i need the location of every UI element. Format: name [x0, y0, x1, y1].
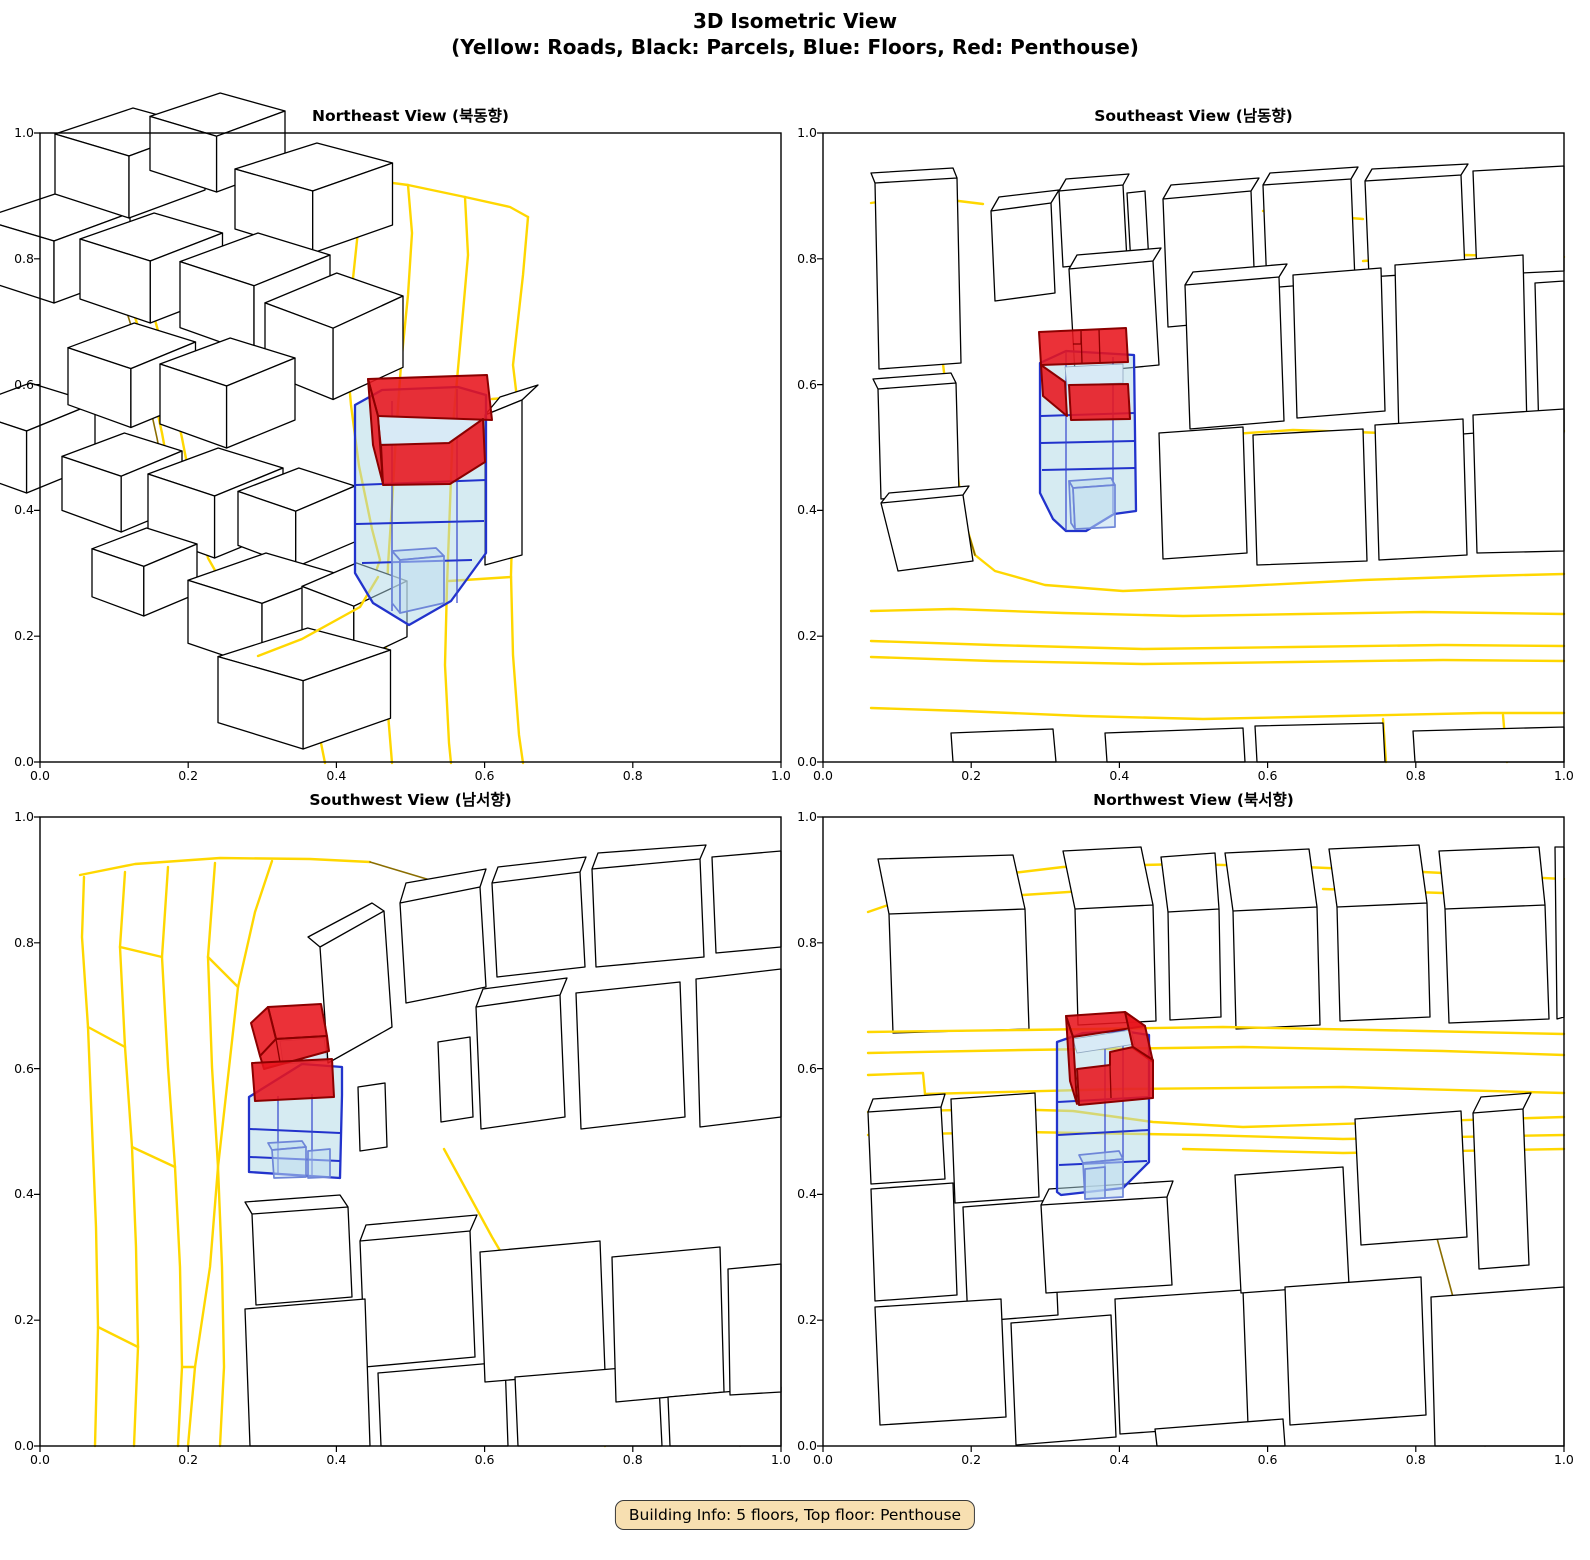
- tick-label: 0.8: [0, 251, 34, 267]
- yaxis-northwest: 1.00.80.60.40.20.0: [783, 809, 817, 1454]
- subplot-title-northwest: Northwest View (북서향): [823, 788, 1564, 810]
- tick-label: 0.6: [1253, 1452, 1283, 1468]
- yaxis-southeast: 1.00.80.60.40.20.0: [783, 125, 817, 770]
- tick-label: 1.0: [0, 125, 34, 141]
- subplot-title-southwest: Southwest View (남서향): [40, 788, 781, 810]
- tick-label: 0.2: [173, 1452, 203, 1468]
- tick-label: 0.0: [25, 768, 55, 784]
- figure-title: 3D Isometric View (Yellow: Roads, Black:…: [0, 8, 1590, 60]
- tick-label: 0.2: [956, 1452, 986, 1468]
- scene-southeast: [815, 133, 1572, 770]
- subplot-southeast: [823, 133, 1564, 762]
- tick-label: 0.0: [783, 1438, 817, 1454]
- tick-label: 0.2: [0, 1312, 34, 1328]
- tick-label: 0.6: [470, 768, 500, 784]
- subplot-southwest: [40, 817, 781, 1446]
- tick-label: 1.0: [783, 809, 817, 825]
- tick-label: 1.0: [766, 1452, 796, 1468]
- xaxis-southwest: 0.00.20.40.60.81.0: [25, 1452, 796, 1468]
- tick-label: 1.0: [1549, 1452, 1579, 1468]
- figure-title-line2: (Yellow: Roads, Black: Parcels, Blue: Fl…: [0, 34, 1590, 60]
- tick-label: 0.8: [783, 251, 817, 267]
- tick-label: 0.6: [783, 1061, 817, 1077]
- tick-label: 0.8: [783, 935, 817, 951]
- tick-label: 0.4: [1104, 1452, 1134, 1468]
- tick-label: 0.8: [0, 935, 34, 951]
- tick-label: 0.0: [25, 1452, 55, 1468]
- tick-label: 0.4: [321, 768, 351, 784]
- tick-label: 0.2: [173, 768, 203, 784]
- tick-label: 0.6: [0, 377, 34, 393]
- tick-label: 0.4: [0, 1186, 34, 1202]
- tick-label: 0.6: [1253, 768, 1283, 784]
- tick-label: 0.8: [1401, 1452, 1431, 1468]
- tick-label: 0.2: [956, 768, 986, 784]
- subplot-northeast: [40, 133, 781, 762]
- tick-label: 0.6: [470, 1452, 500, 1468]
- figure-title-line1: 3D Isometric View: [0, 8, 1590, 34]
- xaxis-northeast: 0.00.20.40.60.81.0: [25, 768, 796, 784]
- scene-northeast: [32, 133, 789, 770]
- tick-label: 0.0: [0, 754, 34, 770]
- xaxis-northwest: 0.00.20.40.60.81.0: [808, 1452, 1579, 1468]
- tick-label: 0.4: [783, 1186, 817, 1202]
- tick-label: 0.6: [0, 1061, 34, 1077]
- tick-label: 0.0: [808, 1452, 838, 1468]
- tick-label: 0.0: [783, 754, 817, 770]
- tick-label: 0.8: [1401, 768, 1431, 784]
- tick-label: 0.4: [783, 502, 817, 518]
- tick-label: 0.0: [0, 1438, 34, 1454]
- subplot-northwest: [823, 817, 1564, 1446]
- tick-label: 0.0: [808, 768, 838, 784]
- tick-label: 1.0: [783, 125, 817, 141]
- tick-label: 0.2: [783, 628, 817, 644]
- building-info-badge: Building Info: 5 floors, Top floor: Pent…: [615, 1500, 975, 1530]
- tick-label: 0.2: [783, 1312, 817, 1328]
- yaxis-southwest: 1.00.80.60.40.20.0: [0, 809, 34, 1454]
- tick-label: 0.2: [0, 628, 34, 644]
- tick-label: 0.4: [0, 502, 34, 518]
- scene-southwest: [32, 817, 789, 1454]
- yaxis-northeast: 1.00.80.60.40.20.0: [0, 125, 34, 770]
- tick-label: 1.0: [0, 809, 34, 825]
- xaxis-southeast: 0.00.20.40.60.81.0: [808, 768, 1579, 784]
- tick-label: 0.6: [783, 377, 817, 393]
- tick-label: 0.4: [321, 1452, 351, 1468]
- tick-label: 0.8: [618, 1452, 648, 1468]
- tick-label: 1.0: [1549, 768, 1579, 784]
- tick-label: 0.8: [618, 768, 648, 784]
- scene-northwest: [815, 817, 1572, 1454]
- tick-label: 1.0: [766, 768, 796, 784]
- subplot-title-southeast: Southeast View (남동향): [823, 104, 1564, 126]
- tick-label: 0.4: [1104, 768, 1134, 784]
